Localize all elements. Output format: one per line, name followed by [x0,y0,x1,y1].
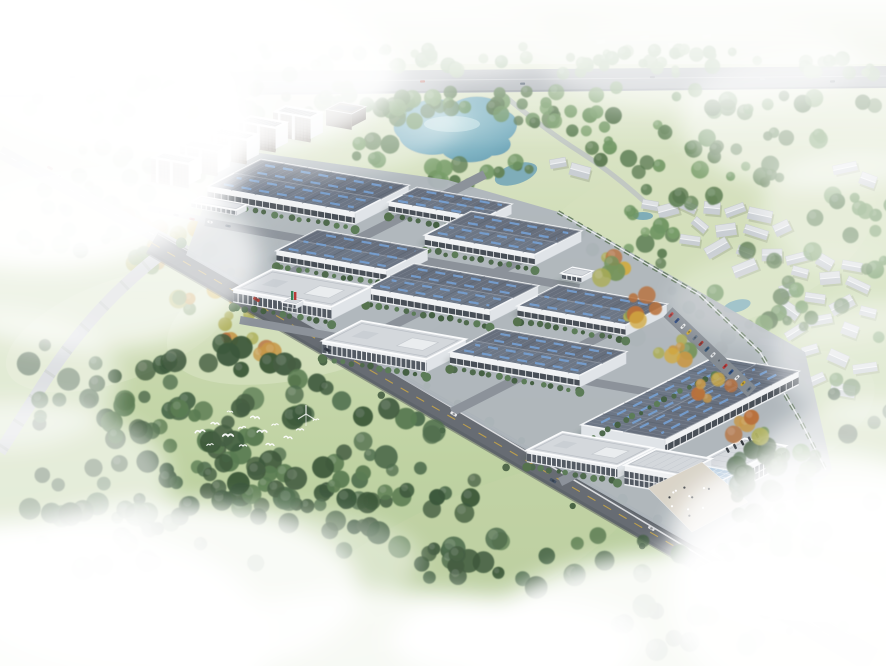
aerial-site-rendering [0,0,886,666]
fog-clouds-layer [0,0,886,666]
rendering-canvas [0,0,886,666]
